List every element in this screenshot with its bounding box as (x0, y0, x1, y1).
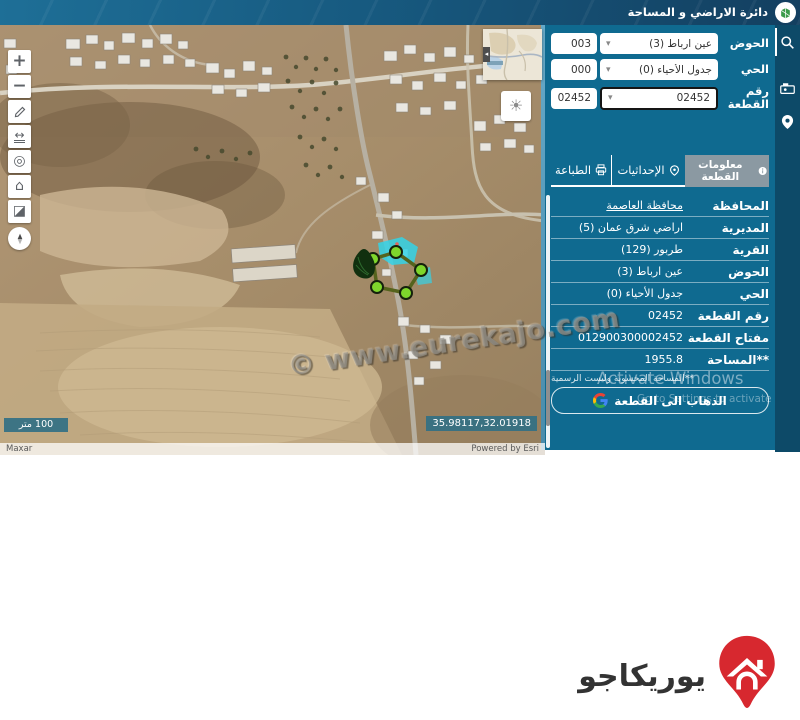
parcel-code-input[interactable] (551, 88, 597, 109)
go-to-parcel-button[interactable]: الذهاب الى القطعة (551, 387, 769, 414)
neighborhood-row: الحي جدول الأحياء (0) ▾ (551, 59, 769, 80)
tab-print[interactable]: الطباعة (551, 155, 611, 187)
neighborhood-info-value: جدول الأحياء (0) (551, 287, 683, 300)
basemap-gallery-button[interactable] (775, 71, 800, 105)
google-maps-icon (593, 393, 608, 408)
measure-button[interactable]: ↔ (8, 125, 31, 148)
table-row: الحي جدول الأحياء (0) (551, 283, 769, 305)
neighborhood-select[interactable]: جدول الأحياء (0) ▾ (600, 59, 718, 80)
attribution-esri: Powered by Esri (471, 443, 539, 455)
table-row: الحوض عين ارباط (3) (551, 261, 769, 283)
parcel-number-info-label: رقم القطعة (683, 309, 769, 323)
parcel-number-select[interactable]: 02452 ▾ (600, 87, 718, 110)
tab-parcel-info[interactable]: معلومات القطعة (685, 155, 769, 187)
basin-info-value: عين ارباط (3) (551, 265, 683, 278)
chevron-down-icon: ▾ (606, 65, 611, 75)
neighborhood-code-input[interactable] (551, 59, 597, 80)
compass-button[interactable] (8, 227, 31, 250)
table-row: مفتاح القطعة 012900300002452 (551, 327, 769, 349)
draw-button[interactable] (8, 100, 31, 123)
zoom-out-button[interactable]: − (8, 75, 31, 98)
coordinates-pin-icon (669, 164, 680, 177)
basin-label: الحوض (721, 37, 769, 50)
parcel-key-value: 012900300002452 (551, 331, 683, 344)
dls-logo-icon (779, 6, 792, 19)
app-header: دائرة الاراضي و المساحة (0, 0, 800, 25)
parcel-info-table: المحافظة محافظة العاصمة المديرية اراضي ش… (551, 195, 769, 371)
neighborhood-info-label: الحي (683, 287, 769, 301)
app-window: + − ↔ ◎ ⌂ ◪ (0, 0, 800, 720)
eurekajo-pin-logo (716, 634, 778, 708)
footer-brand: يوريكاجو (578, 634, 778, 708)
parcel-number-select-value: 02452 (617, 92, 710, 104)
panel-scrollbar-thumb[interactable] (546, 370, 550, 426)
attribution-maxar: Maxar (6, 443, 32, 455)
tab-parcel-info-label: معلومات القطعة (687, 159, 754, 184)
panel-tabs: معلومات القطعة الإحداثيات الطباعة (551, 155, 769, 187)
side-toolbar (775, 25, 800, 452)
printer-icon (595, 164, 607, 176)
scale-bar: 100 متر (4, 418, 68, 432)
zoom-in-button[interactable]: + (8, 50, 31, 73)
pencil-icon (13, 105, 27, 119)
directorate-value: اراضي شرق عمان (5) (551, 221, 683, 234)
footer-brand-text: يوريكاجو (578, 659, 706, 694)
chevron-down-icon: ▾ (606, 39, 611, 49)
go-to-parcel-label: الذهاب الى القطعة (614, 394, 727, 408)
app-title: دائرة الاراضي و المساحة (628, 0, 768, 25)
neighborhood-label: الحي (721, 63, 769, 76)
brightness-button[interactable]: ☀ (501, 91, 531, 121)
overview-minimap[interactable]: ◂ (483, 29, 542, 80)
measure-icon: ↔ (14, 130, 24, 143)
area-value: 1955.8 (551, 353, 683, 366)
location-tool-button[interactable] (775, 105, 800, 139)
parcel-panel: الحوض عين ارباط (3) ▾ الحي جدول الأحياء … (545, 25, 775, 450)
parcel-number-info-value: 02452 (551, 309, 683, 322)
table-row: المديرية اراضي شرق عمان (5) (551, 217, 769, 239)
basemap-card-icon (780, 82, 795, 95)
info-icon (758, 165, 767, 177)
basemap-button[interactable]: ◪ (8, 200, 31, 223)
locate-button[interactable]: ◎ (8, 150, 31, 173)
basin-code-input[interactable] (551, 33, 597, 54)
parcel-key-label: مفتاح القطعة (683, 331, 769, 345)
map-canvas[interactable]: + − ↔ ◎ ⌂ ◪ (0, 25, 545, 455)
tab-coordinates-label: الإحداثيات (617, 163, 664, 177)
satellite-imagery (0, 25, 545, 455)
table-row: المحافظة محافظة العاصمة (551, 195, 769, 217)
search-tool-button[interactable] (775, 25, 800, 59)
tab-coordinates[interactable]: الإحداثيات (611, 155, 685, 187)
basin-info-label: الحوض (683, 265, 769, 279)
governorate-label: المحافظة (683, 199, 769, 213)
dls-logo (775, 2, 796, 23)
coordinates-readout: 35.98117,32.01918 (426, 416, 537, 431)
parcel-number-row: رقم القطعة 02452 ▾ (551, 85, 769, 111)
village-value: طربور (129) (551, 243, 683, 256)
panel-scrollbar (546, 195, 550, 448)
parcel-number-label: رقم القطعة (721, 85, 769, 111)
village-label: القرية (683, 243, 769, 257)
basin-row: الحوض عين ارباط (3) ▾ (551, 33, 769, 54)
minimap-collapse-arrow[interactable]: ◂ (483, 47, 490, 62)
home-button[interactable]: ⌂ (8, 175, 31, 198)
governorate-value-link[interactable]: محافظة العاصمة (551, 199, 683, 212)
chevron-down-icon: ▾ (608, 93, 613, 103)
neighborhood-select-value: جدول الأحياء (0) (615, 64, 712, 76)
table-row: رقم القطعة 02452 (551, 305, 769, 327)
search-icon (780, 35, 795, 50)
compass-needle-icon (13, 232, 27, 246)
map-attribution: Maxar Powered by Esri (0, 443, 545, 455)
area-label: **المساحة (683, 353, 769, 367)
table-row: القرية طربور (129) (551, 239, 769, 261)
map-controls: + − ↔ ◎ ⌂ ◪ (8, 50, 31, 250)
basin-select-value: عين ارباط (3) (615, 38, 712, 50)
directorate-label: المديرية (683, 221, 769, 235)
tab-print-label: الطباعة (555, 163, 591, 177)
basin-select[interactable]: عين ارباط (3) ▾ (600, 33, 718, 54)
area-disclaimer-note: **المساحة المحسوبة وليست الرسمية (551, 374, 769, 384)
location-pin-icon (781, 114, 794, 130)
minimap-content (483, 29, 542, 80)
